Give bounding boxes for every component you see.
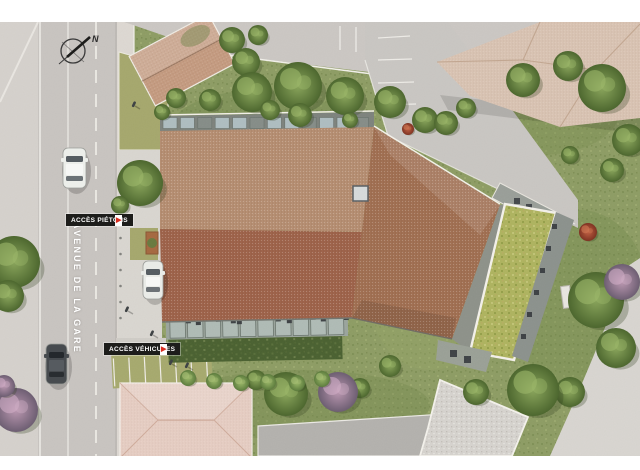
vehicle-access-arrow-icon: ▶ [160, 344, 167, 355]
car [61, 148, 91, 194]
street-name-avenue-de-la-gare: AVENUE DE LA GARE [72, 222, 82, 354]
bollard [119, 285, 122, 288]
compass-north-label: N [92, 34, 99, 44]
bollard [119, 269, 122, 272]
bollard [119, 301, 122, 304]
pedestrian-access-label: ACCÈS PIÉTONS [66, 214, 133, 226]
bollard [119, 253, 122, 256]
bollard [119, 317, 122, 320]
bollard [119, 237, 122, 240]
site-plan-page: N AVENUE DE LA GARE ACCÈS PIÉTONS ▶ ACCÈ… [0, 0, 640, 470]
car [44, 344, 72, 390]
pedestrian-access-arrow-icon: ▶ [115, 215, 122, 226]
site-plan-rendering: N [0, 0, 640, 470]
car [141, 261, 168, 305]
vehicle-access-label: ACCÈS VÉHICULES [104, 343, 180, 355]
